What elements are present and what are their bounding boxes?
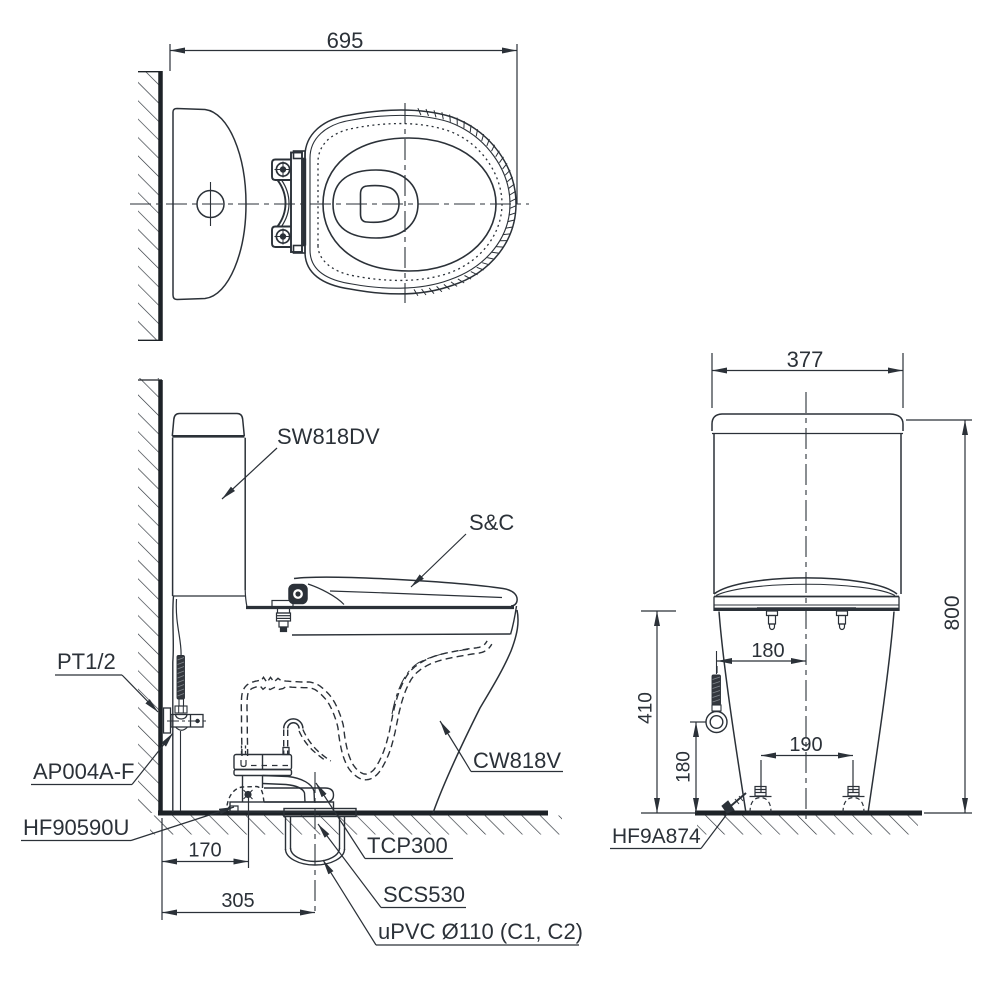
svg-text:800: 800 bbox=[941, 595, 964, 630]
svg-text:180: 180 bbox=[674, 751, 695, 783]
svg-text:TCP300: TCP300 bbox=[367, 833, 448, 858]
svg-text:SW818DV: SW818DV bbox=[277, 424, 380, 449]
svg-text:PT1/2: PT1/2 bbox=[57, 649, 116, 674]
svg-text:190: 190 bbox=[789, 734, 822, 756]
svg-text:695: 695 bbox=[327, 28, 364, 53]
svg-text:uPVC Ø110 (C1, C2): uPVC Ø110 (C1, C2) bbox=[378, 919, 583, 944]
svg-text:SCS530: SCS530 bbox=[383, 882, 465, 907]
svg-text:180: 180 bbox=[751, 640, 784, 662]
svg-text:AP004A-F: AP004A-F bbox=[33, 759, 135, 784]
svg-text:377: 377 bbox=[787, 347, 824, 372]
svg-text:410: 410 bbox=[636, 692, 657, 724]
svg-text:170: 170 bbox=[188, 840, 221, 862]
svg-text:CW818V: CW818V bbox=[473, 748, 561, 773]
svg-text:305: 305 bbox=[221, 890, 254, 912]
svg-text:HF9A874: HF9A874 bbox=[612, 825, 701, 848]
svg-text:HF90590U: HF90590U bbox=[23, 815, 129, 840]
svg-text:S&C: S&C bbox=[469, 510, 514, 535]
